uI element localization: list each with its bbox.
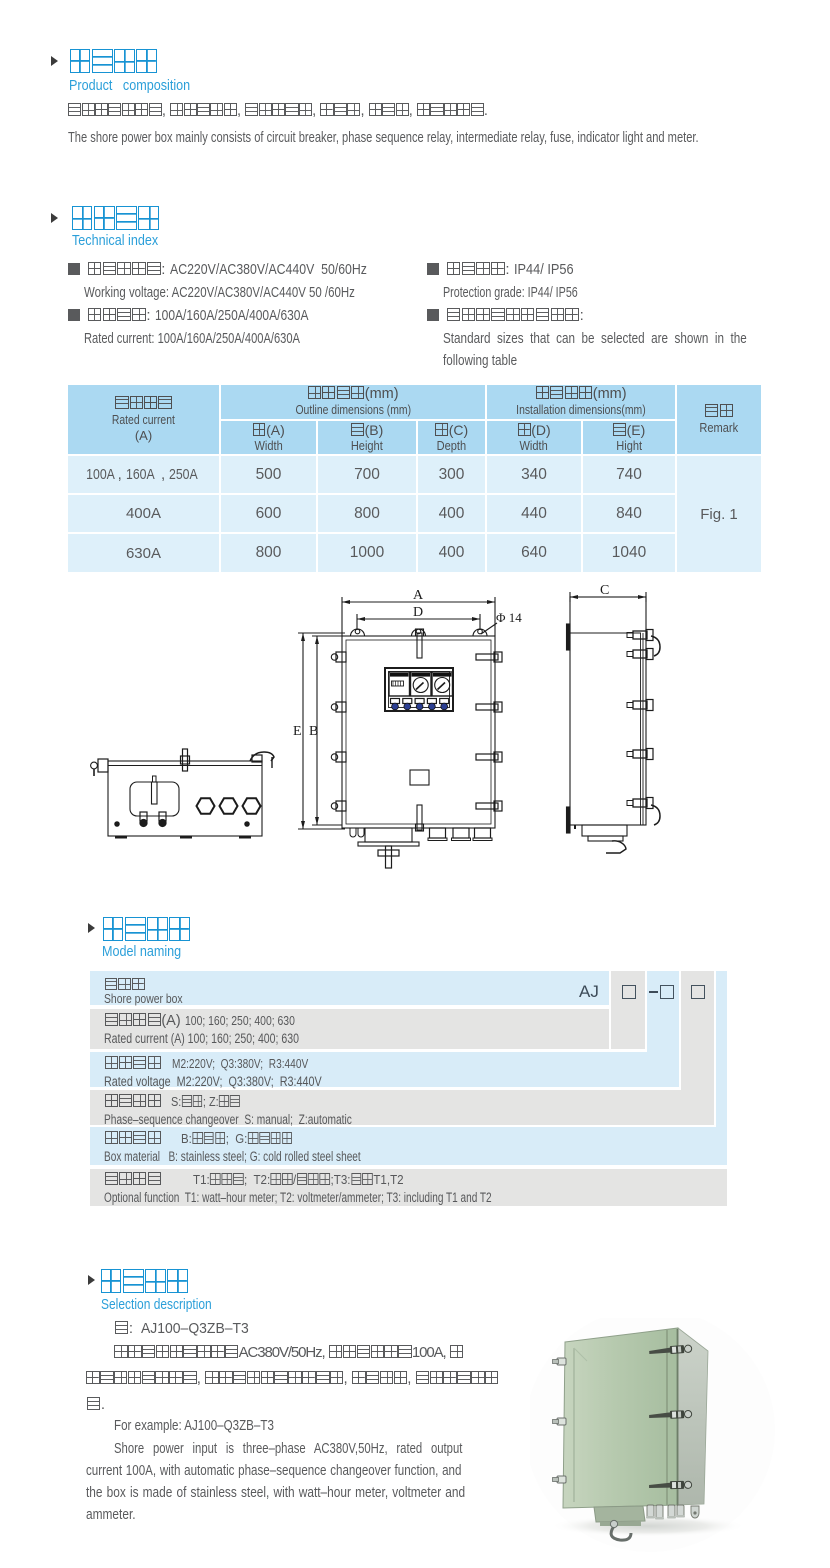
- svg-text:E: E: [293, 724, 302, 739]
- svg-text:C: C: [600, 585, 609, 598]
- svg-text:B: B: [309, 724, 318, 739]
- svg-text:Φ 14: Φ 14: [496, 610, 522, 625]
- svg-text:A: A: [413, 588, 424, 603]
- svg-text:D: D: [413, 605, 423, 620]
